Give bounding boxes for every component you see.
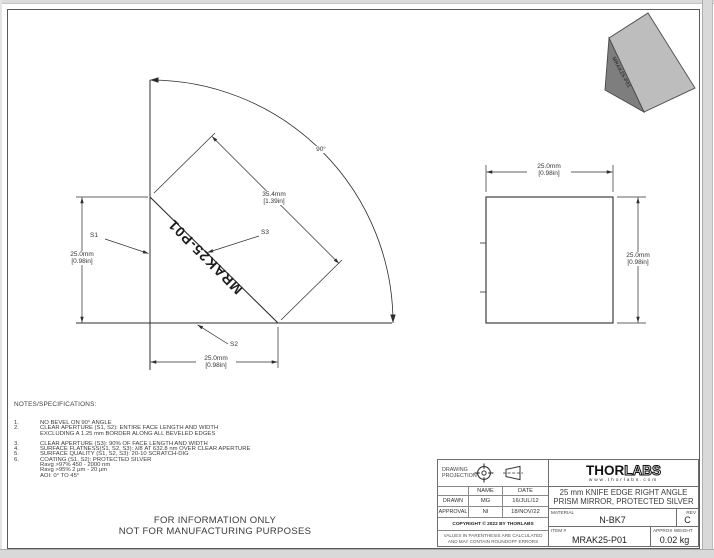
copyright-notice: COPYRIGHT © 2022 BY THORLABS bbox=[438, 518, 548, 531]
front-hypotenuse-dimension: 35.4mm [1.39in] bbox=[248, 191, 300, 205]
side-width-dimension: 25.0mm [0.98in] bbox=[527, 163, 571, 177]
front-height-dimension: 25.0mm [0.98in] bbox=[64, 251, 100, 265]
logo-thor-text: THOR bbox=[586, 463, 624, 478]
notes-heading: NOTES/SPECIFICATIONS: bbox=[14, 401, 314, 408]
target-projection-icon bbox=[475, 464, 494, 483]
approval-row: APPROVAL NI 18/NOV/22 bbox=[438, 507, 548, 518]
date-header: DATE bbox=[503, 487, 548, 495]
material-cell: MATERIAL N-BK7 bbox=[549, 509, 677, 526]
angle-dimension: 90° bbox=[310, 146, 332, 153]
note-item-6: 6. COATING (S1, S2): PROTECTED SILVER Ra… bbox=[14, 458, 314, 479]
drawn-date: 16/JUL/12 bbox=[503, 496, 548, 506]
arc-arrow-right bbox=[390, 315, 395, 324]
note-item-2: 2. CLEAR APERTURE (S1, S2): ENTIRE FACE … bbox=[14, 426, 314, 437]
rev-value: C bbox=[677, 515, 698, 525]
front-width-dimension: 25.0mm [0.98in] bbox=[196, 355, 236, 369]
drawn-row: DRAWN MG 16/JUL/12 bbox=[438, 496, 548, 507]
item-value: MRAK25-P01 bbox=[549, 535, 650, 545]
arc-arrow-top bbox=[150, 77, 159, 82]
surface-label-s2: S2 bbox=[230, 341, 238, 348]
approval-name: NI bbox=[469, 507, 503, 517]
thorlabs-logo: THORLABS www.thorlabs.com bbox=[549, 460, 698, 487]
drawing-sheet-window: MRAK25-P01 25.0mm [0.98in] S1 35.4mm [1.… bbox=[0, 0, 714, 558]
surface-label-s1: S1 bbox=[90, 232, 98, 239]
item-label: ITEM # bbox=[551, 528, 566, 533]
window-right-edge[interactable] bbox=[702, 0, 713, 558]
cone-projection-icon bbox=[503, 466, 523, 479]
projection-symbols bbox=[472, 460, 544, 486]
material-value: N-BK7 bbox=[549, 515, 676, 525]
revision-cell: REV C bbox=[677, 509, 698, 526]
drawing-projection-cell: DRAWING PROJECTION bbox=[438, 460, 548, 487]
front-view bbox=[76, 77, 396, 370]
title-block: DRAWING PROJECTION bbox=[437, 459, 699, 547]
weight-label: APPROX WEIGHT bbox=[653, 528, 693, 533]
iso-view: MRAK25-P01 bbox=[605, 13, 695, 112]
window-bottom-edge[interactable] bbox=[0, 549, 714, 558]
window-left-edge bbox=[0, 0, 2, 558]
drawn-name: MG bbox=[469, 496, 503, 506]
surface-label-s3: S3 bbox=[261, 229, 269, 236]
information-only-notice: FOR INFORMATION ONLY NOT FOR MANUFACTURI… bbox=[90, 516, 340, 537]
drawn-label: DRAWN bbox=[438, 496, 469, 506]
parenthesis-disclaimer: VALUES IN PARENTHESIS ARE CALCULATED AND… bbox=[438, 531, 548, 546]
weight-cell: APPROX WEIGHT 0.02 kg bbox=[651, 527, 698, 546]
website-text: www.thorlabs.com bbox=[589, 478, 658, 483]
name-date-header-row: NAME DATE bbox=[438, 487, 548, 496]
item-number-cell: ITEM # MRAK25-P01 bbox=[549, 527, 651, 546]
logo-labs-text: LABS bbox=[624, 463, 661, 478]
side-height-dimension: 25.0mm [0.98in] bbox=[616, 252, 660, 266]
window-top-edge bbox=[0, 0, 714, 4]
notes-specifications: NOTES/SPECIFICATIONS: 1. NO BEVEL ON 90°… bbox=[14, 401, 314, 479]
projection-label: DRAWING PROJECTION bbox=[438, 467, 472, 479]
side-view bbox=[480, 165, 646, 323]
drawing-title: 25 mm KNIFE EDGE RIGHT ANGLE PRISM MIRRO… bbox=[549, 487, 698, 509]
name-header: NAME bbox=[469, 487, 503, 495]
weight-value: 0.02 kg bbox=[651, 535, 698, 545]
approval-label: APPROVAL bbox=[438, 507, 469, 517]
approval-date: 18/NOV/22 bbox=[503, 507, 548, 517]
